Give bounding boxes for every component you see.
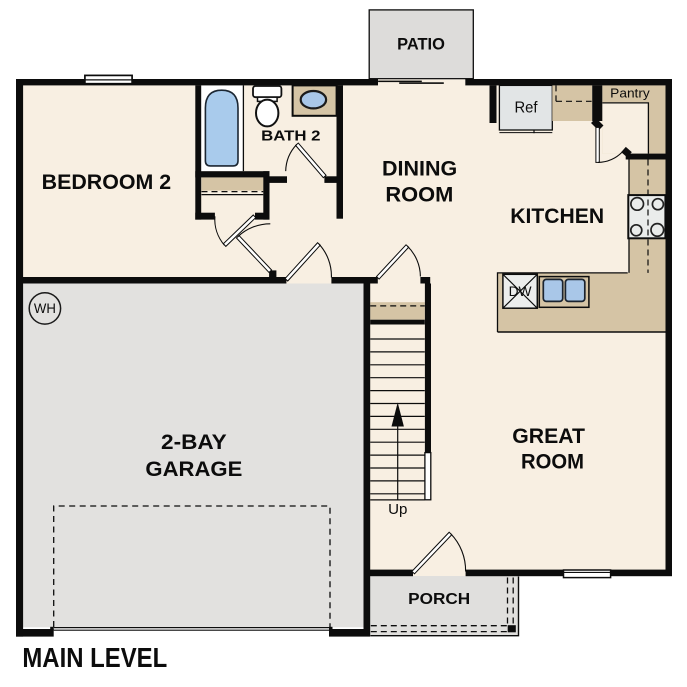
- svg-text:ROOM: ROOM: [385, 183, 453, 206]
- svg-text:WH: WH: [34, 301, 56, 316]
- svg-text:MAIN LEVEL: MAIN LEVEL: [22, 642, 167, 673]
- svg-text:Up: Up: [388, 501, 407, 518]
- svg-text:ROOM: ROOM: [521, 451, 584, 474]
- svg-text:PATIO: PATIO: [397, 35, 445, 54]
- svg-text:KITCHEN: KITCHEN: [510, 205, 604, 228]
- svg-text:DINING: DINING: [382, 158, 457, 181]
- svg-text:Pantry: Pantry: [610, 86, 650, 101]
- svg-text:GREAT: GREAT: [512, 425, 585, 448]
- svg-text:Ref: Ref: [515, 100, 539, 117]
- svg-text:GARAGE: GARAGE: [145, 458, 242, 481]
- svg-text:BEDROOM 2: BEDROOM 2: [42, 170, 172, 194]
- svg-text:2-BAY: 2-BAY: [161, 431, 227, 454]
- svg-text:PORCH: PORCH: [408, 591, 470, 608]
- svg-text:BATH 2: BATH 2: [261, 127, 320, 144]
- svg-text:DW: DW: [509, 284, 532, 299]
